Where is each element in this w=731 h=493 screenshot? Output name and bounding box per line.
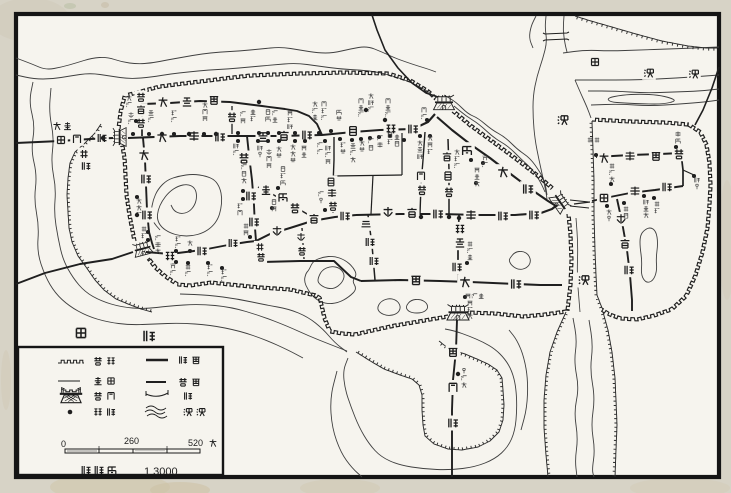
svg-text:260: 260 <box>124 436 139 446</box>
svg-text:520: 520 <box>188 438 203 448</box>
svg-text:0: 0 <box>61 439 66 449</box>
svg-text:1 3000: 1 3000 <box>144 466 178 478</box>
